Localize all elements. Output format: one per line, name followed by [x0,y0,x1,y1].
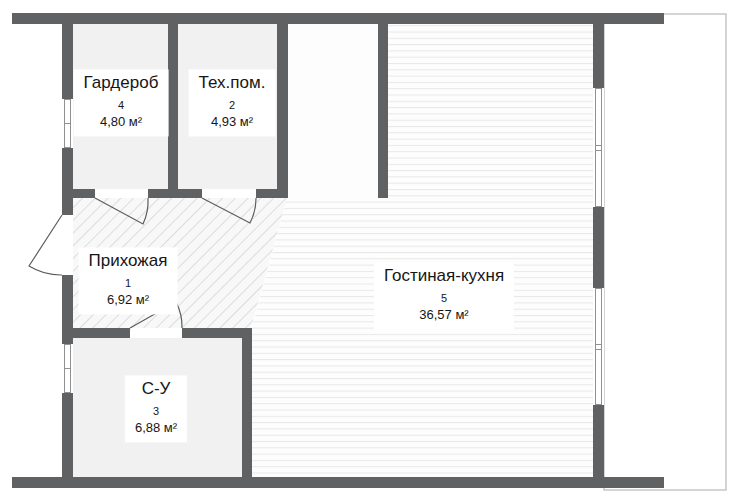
room-area: 4,80 м² [84,116,159,131]
floor-plan: Гардероб 4 4,80 м² Тех.пом. 2 4,93 м² Пр… [0,0,741,502]
entrance-door-opening [62,215,73,275]
wall-top [12,13,664,24]
room-label-bathroom: С-У 3 6,88 м² [125,375,187,442]
wall-utility-right [277,24,288,198]
room-area: 6,88 м² [135,422,177,437]
balcony-area [604,14,726,490]
wall-bathroom-right [242,328,252,477]
room-name: Тех.пом. [199,73,266,93]
room-area: 36,57 м² [384,309,504,324]
room-name: Гостиная-кухня [384,266,504,286]
room-label-living-kitchen: Гостиная-кухня 5 36,57 м² [374,262,514,329]
room-name: С-У [135,379,177,399]
room-number: 5 [384,292,504,305]
room-label-utility: Тех.пом. 2 4,93 м² [189,69,276,136]
room-name: Гардероб [84,73,159,93]
room-number: 4 [84,99,159,112]
window-right-top-icon [596,89,602,207]
room-number: 2 [199,99,266,112]
niche-floor [288,24,378,198]
room-area: 4,93 м² [199,116,266,131]
room-label-wardrobe: Гардероб 4 4,80 м² [74,69,169,136]
entrance-door-swing-icon [29,215,62,275]
wall-wardrobe-utility [168,24,178,189]
room-name: Прихожая [89,251,168,271]
room-label-hallway: Прихожая 1 6,92 м² [79,247,178,314]
wall-right [593,13,604,488]
room-number: 1 [89,277,168,290]
room-area: 6,92 м² [89,294,168,309]
room-number: 3 [135,405,177,418]
wardrobe-door-opening [95,189,148,198]
wall-niche-right [378,24,388,198]
window-right-bottom-icon [596,289,602,405]
bathroom-door-opening [130,328,182,338]
utility-door-opening [202,189,256,198]
wall-bottom [12,477,664,488]
